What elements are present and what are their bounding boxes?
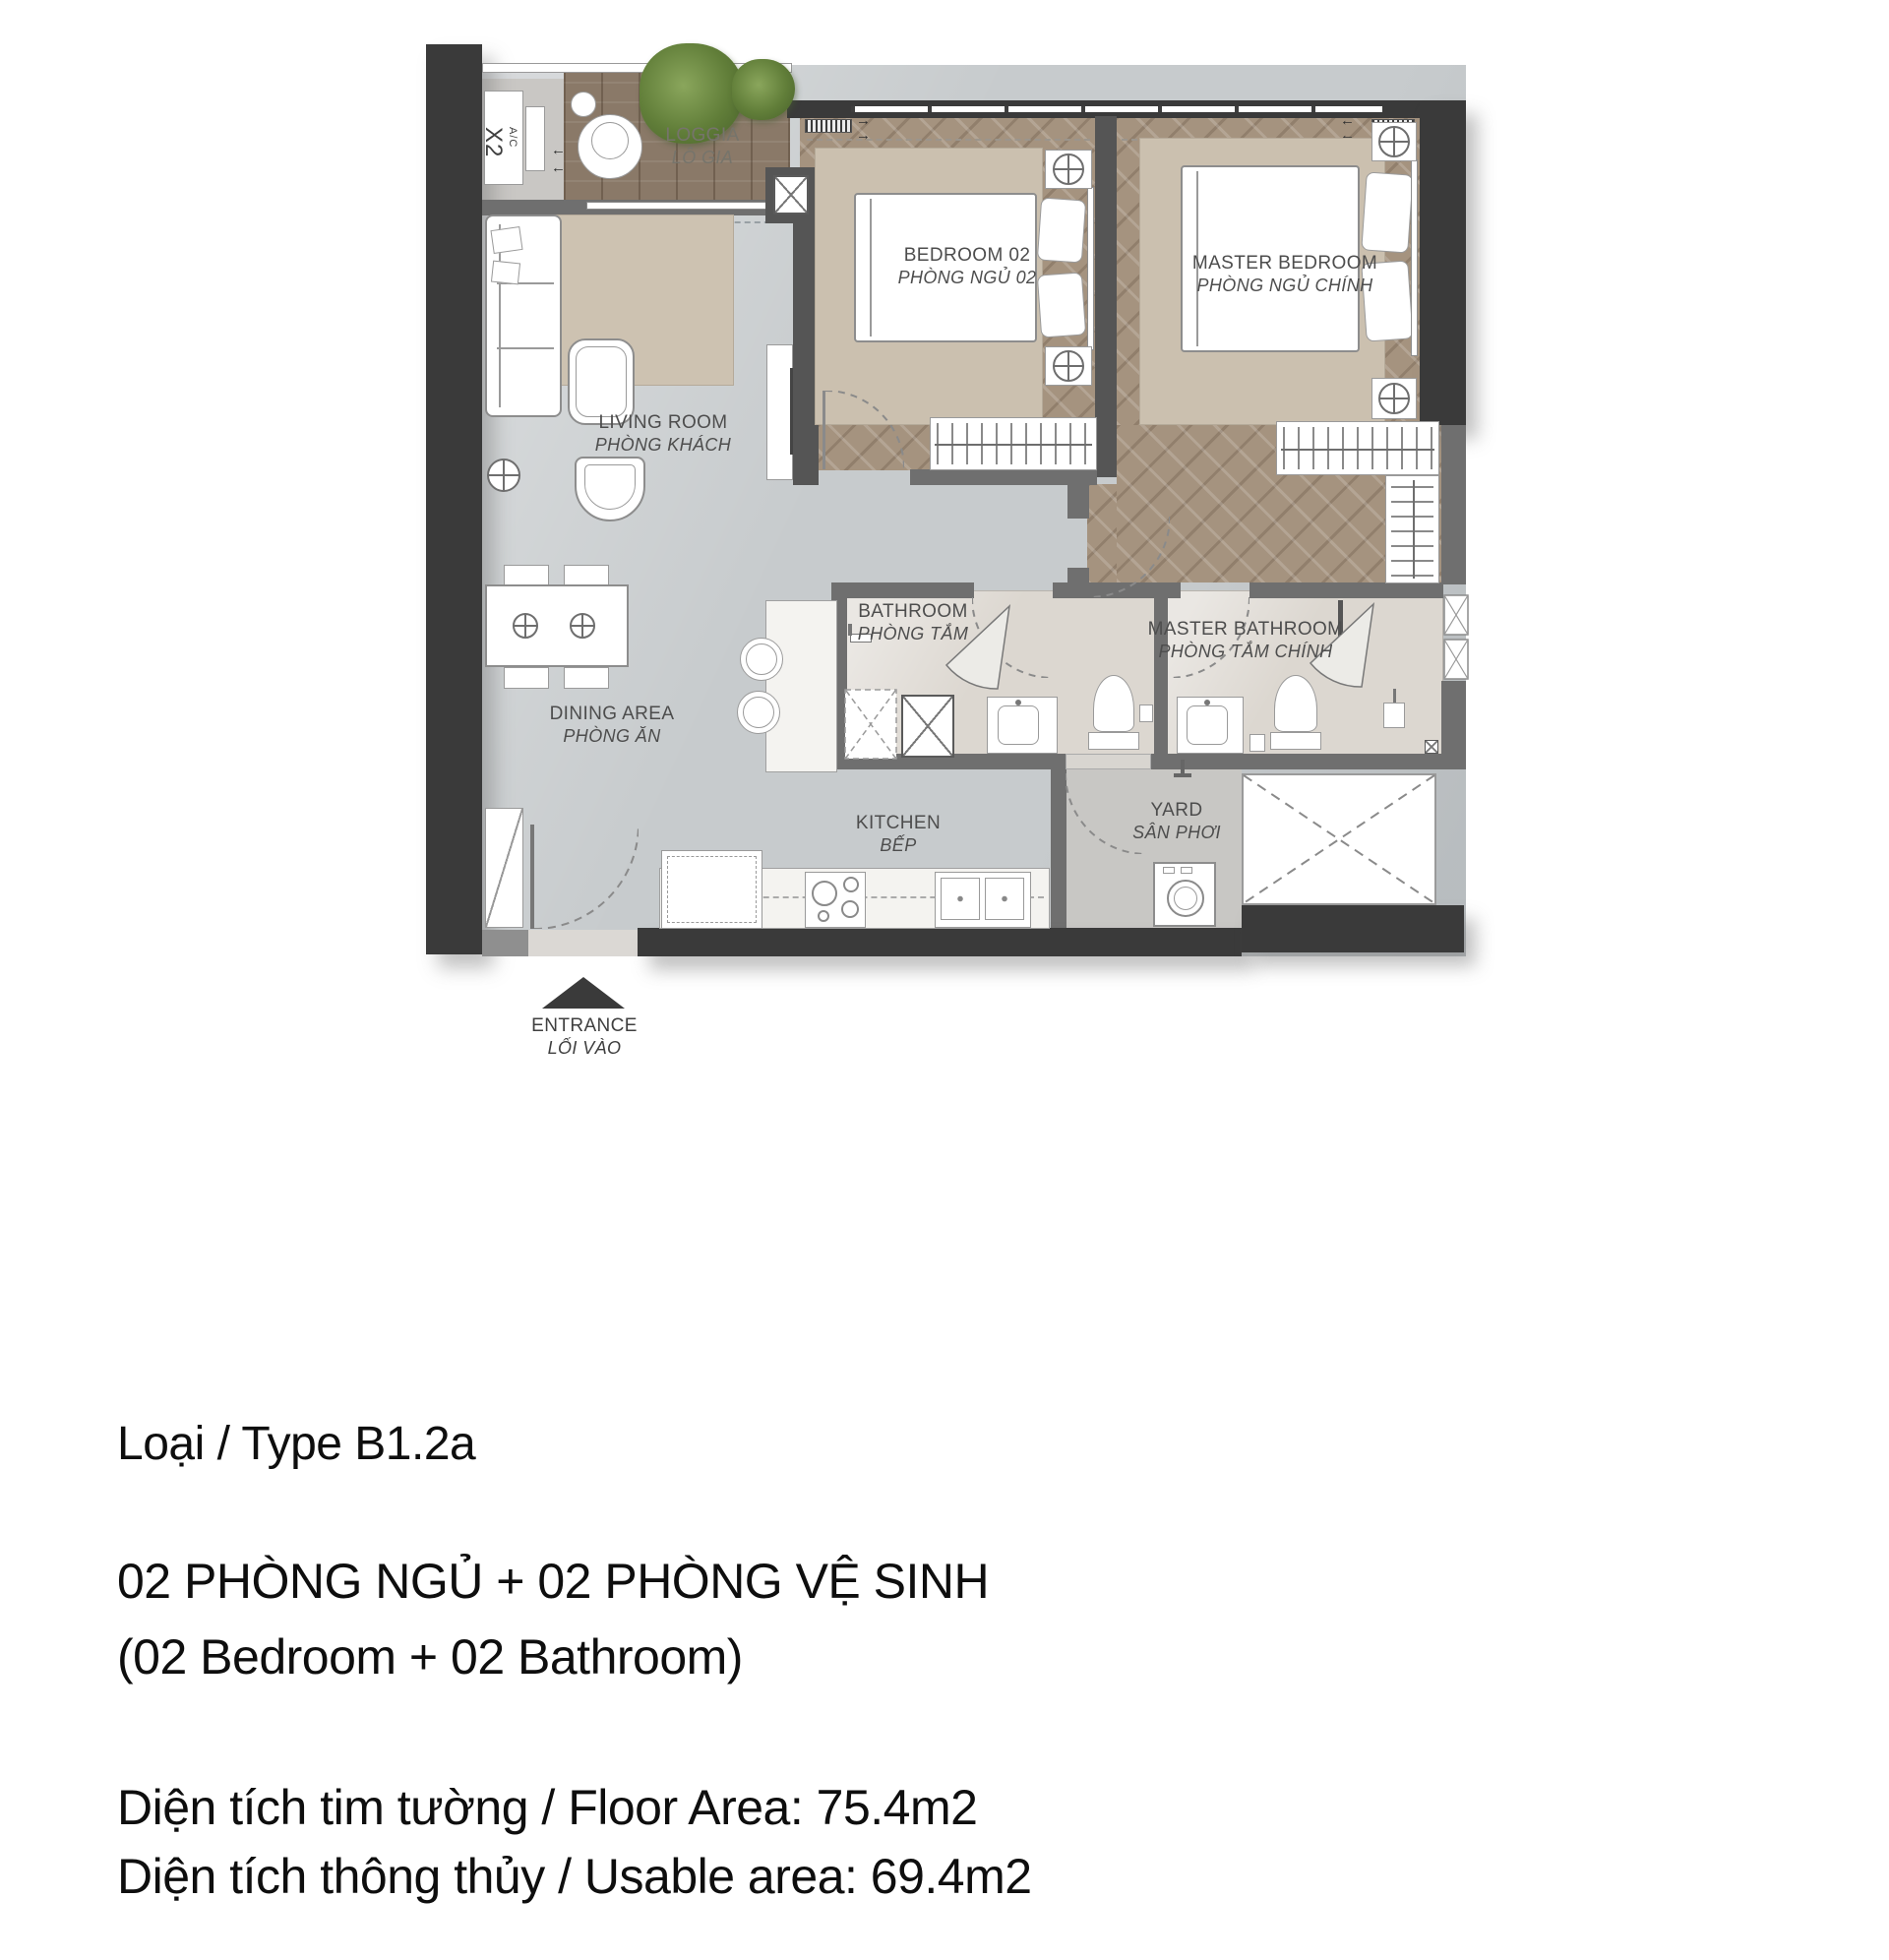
room-label-kitchen: KITCHEN BẾP (751, 812, 1046, 857)
ceiling-fixture-icon (1378, 383, 1410, 414)
sofa-pillow (491, 261, 520, 285)
tissue-holder (1139, 704, 1153, 722)
wall-corridor-right-b (1067, 568, 1089, 583)
ac-count: X2 (479, 127, 507, 157)
ceiling-fixture-icon (487, 459, 520, 492)
wall-left (426, 44, 482, 954)
shaft-box (901, 695, 954, 758)
room-label-loggia: LOGGIA LÔ GIA (555, 124, 850, 169)
toilet-tank (1088, 732, 1139, 750)
room-label-en: DINING AREA (464, 703, 760, 725)
room-label-vi: SÂN PHƠI (1029, 822, 1324, 844)
room-label-vi: LỐI VÀO (437, 1037, 732, 1060)
stove-icon (805, 872, 866, 928)
dining-chair (504, 565, 549, 586)
dining-chair (564, 667, 609, 689)
airflow-arrow-icon: → (856, 131, 871, 141)
floor-area-line: Diện tích tim tường / Floor Area: 75.4m2 (117, 1779, 977, 1836)
room-label-en: ENTRANCE (437, 1014, 732, 1037)
room-label-living-room: LIVING ROOM PHÒNG KHÁCH (516, 411, 811, 457)
wall-top (787, 100, 1466, 118)
wall-bath-top-3 (1249, 582, 1443, 598)
dining-chair (564, 565, 609, 586)
entrance-door-arc (534, 825, 639, 929)
room-label-en: LOGGIA (555, 124, 850, 147)
ac-unit-panel (525, 106, 545, 171)
room-label-vi: PHÒNG KHÁCH (516, 434, 811, 457)
wall-bedroom02-bottom (910, 469, 1097, 485)
wardrobe (930, 417, 1097, 470)
room-label-en: MASTER BATHROOM (1098, 618, 1393, 641)
room-label-master-bedroom: MASTER BEDROOM PHÒNG NGỦ CHÍNH (1137, 252, 1432, 297)
ceiling-fixture-icon (1378, 126, 1410, 157)
wall-bath-top-1 (831, 582, 974, 598)
room-label-vi: PHÒNG NGỦ CHÍNH (1137, 275, 1432, 297)
room-label-entrance: ENTRANCE LỐI VÀO (437, 1014, 732, 1060)
room-label-vi: LÔ GIA (555, 147, 850, 169)
room-label-vi: PHÒNG ĂN (464, 725, 760, 748)
table-decor-icon (513, 613, 538, 639)
ceiling-fixture-icon (1053, 350, 1084, 382)
room-label-en: BATHROOM (765, 600, 1061, 623)
pillow (1361, 171, 1413, 253)
room-label-bathroom: BATHROOM PHÒNG TẮM (765, 600, 1061, 645)
wall-corridor-right-a (1067, 484, 1089, 519)
ac-label: A/C (507, 127, 518, 148)
ceiling-fixture-icon (1053, 153, 1084, 185)
room-label-bedroom-02: BEDROOM 02 PHÒNG NGỦ 02 (820, 244, 1115, 289)
wall-master-bath-right (1441, 681, 1466, 769)
bathroom-sink-icon (987, 697, 1058, 754)
wall-yard-left (1051, 769, 1066, 930)
wall-bottom-right (1242, 905, 1464, 952)
usable-area-line: Diện tích thông thủy / Usable area: 69.4… (117, 1848, 1032, 1905)
ac-unit: A/C X2 (484, 91, 523, 185)
room-label-master-bathroom: MASTER BATHROOM PHÒNG TẮM CHÍNH (1098, 618, 1393, 663)
table-decor-icon (570, 613, 595, 639)
shoe-cabinet (485, 808, 523, 928)
room-label-vi: BẾP (751, 834, 1046, 857)
bin (1249, 734, 1265, 752)
floor-plan-page: { "palette": { "wall-dark": "#3a3a3a", "… (0, 0, 1889, 1960)
dining-chair (504, 667, 549, 689)
bathroom-sink-icon (1177, 697, 1244, 754)
room-label-en: BEDROOM 02 (820, 244, 1115, 267)
room-label-vi: PHÒNG NGỦ 02 (820, 267, 1115, 289)
shaft-box (773, 175, 809, 214)
loggia-side-table (571, 92, 596, 117)
ac-unit-label: A/C X2 (489, 95, 518, 180)
entrance-arrow-icon (542, 977, 625, 1009)
wall-bedroom-divider (1095, 116, 1117, 477)
sofa-pillow (490, 226, 522, 254)
wall-bottom-stub (482, 930, 528, 956)
master-door-arc (1089, 517, 1170, 597)
type-line: Loại / Type B1.2a (117, 1417, 475, 1471)
bedroom02-door-arc (825, 391, 904, 469)
room-label-yard: YARD SÂN PHƠI (1029, 799, 1324, 844)
window-glazing (851, 106, 1382, 112)
towel-rail (1383, 703, 1405, 728)
fridge (661, 850, 762, 929)
wardrobe (1276, 421, 1439, 475)
faucet-icon (1174, 773, 1191, 777)
vent-hatch (1443, 594, 1469, 681)
wall-right-gray (1441, 425, 1466, 584)
bedrooms-line-vi: 02 PHÒNG NGỦ + 02 PHÒNG VỆ SINH (117, 1553, 989, 1610)
washing-machine-icon (1153, 862, 1216, 927)
room-label-en: YARD (1029, 799, 1324, 822)
airflow-arrow-icon: → (856, 116, 871, 126)
room-label-vi: PHÒNG TẮM CHÍNH (1098, 641, 1393, 663)
wall-bottom-main (638, 928, 1242, 956)
yard-door-threshold (1066, 754, 1151, 769)
airflow-arrow-icon: ← (1340, 116, 1355, 126)
kitchen-sink-icon (935, 872, 1031, 928)
toilet-tank (1270, 732, 1321, 750)
dining-table (485, 584, 629, 667)
room-label-en: MASTER BEDROOM (1137, 252, 1432, 275)
room-label-en: LIVING ROOM (516, 411, 811, 434)
wall-bath-bottom-2 (1151, 754, 1441, 769)
floor-drain-icon (1425, 740, 1438, 754)
bedrooms-line-en: (02 Bedroom + 02 Bathroom) (117, 1628, 743, 1685)
towel-rail-stem (1393, 689, 1396, 703)
room-label-dining-area: DINING AREA PHÒNG ĂN (464, 703, 760, 748)
loggia-sliding-door (586, 202, 783, 210)
room-label-en: KITCHEN (751, 812, 1046, 834)
cabinet-hatch (844, 689, 897, 760)
wardrobe (1385, 475, 1439, 583)
floor-plan: → → ← ← ← ← A/C X2 (0, 0, 1889, 1082)
room-label-vi: PHÒNG TẮM (765, 623, 1061, 645)
entrance-threshold (528, 930, 638, 956)
